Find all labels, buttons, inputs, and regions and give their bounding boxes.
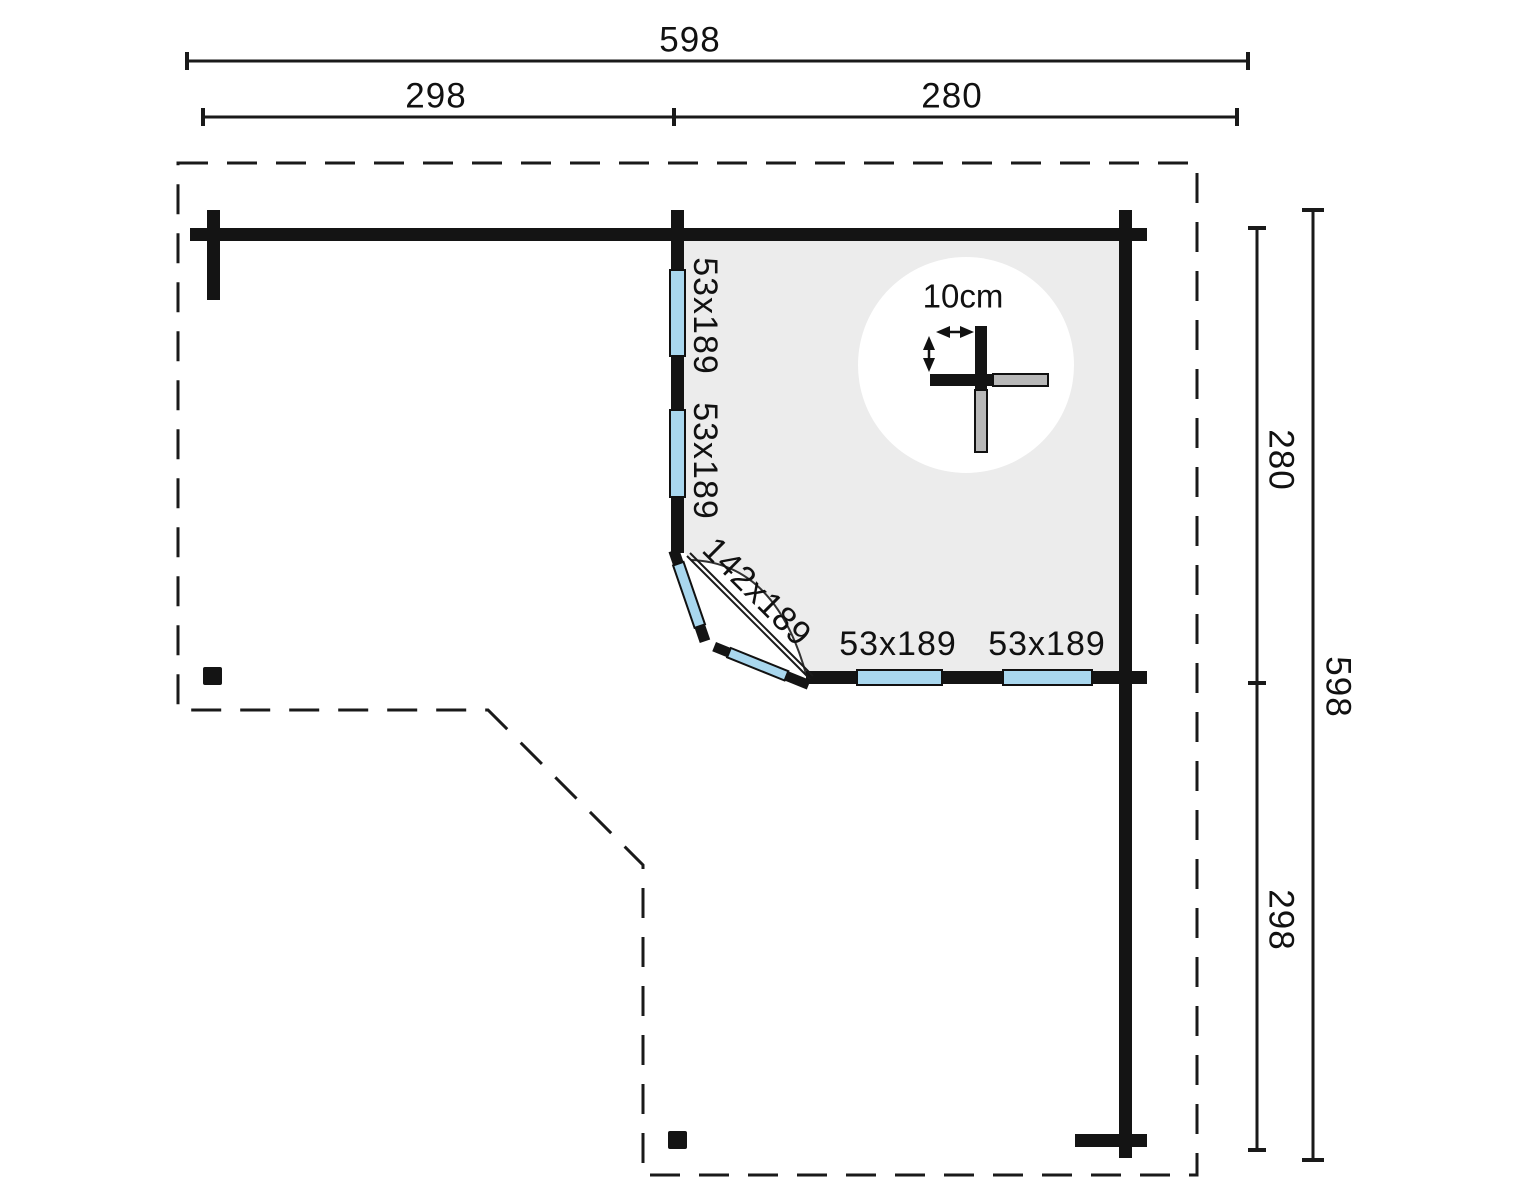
- dim-label-right-total: 598: [1319, 656, 1358, 717]
- left-window-lower: [670, 410, 685, 497]
- right-wall-bottom-cap: [1075, 1134, 1147, 1147]
- floorplan-drawing: 10cm: [0, 0, 1536, 1193]
- detail-log-vertical-grey: [975, 390, 987, 452]
- dim-label-top-right: 280: [921, 77, 982, 116]
- bottom-window-left: [857, 670, 942, 685]
- label-left-window-upper: 53x189: [686, 257, 724, 375]
- floorplan-canvas: 10cm: [0, 0, 1536, 1193]
- label-bottom-window-left: 53x189: [839, 625, 957, 663]
- bottom-window-right: [1003, 670, 1092, 685]
- detail-spacing-label: 10cm: [923, 278, 1004, 315]
- top-left-post: [207, 210, 220, 300]
- dim-label-top-left: 298: [405, 77, 466, 116]
- label-left-window-lower: 53x189: [686, 402, 724, 520]
- left-window-upper: [670, 270, 685, 356]
- dim-label-right-bottom: 298: [1262, 889, 1301, 950]
- detail-log-horizontal-black: [930, 374, 993, 386]
- post-terrace-left: [203, 667, 222, 685]
- top-wall: [190, 228, 1147, 241]
- post-terrace-bottom: [668, 1131, 687, 1149]
- detail-log-horizontal-grey: [993, 374, 1048, 386]
- label-bottom-window-right: 53x189: [988, 625, 1106, 663]
- dim-label-right-top: 280: [1262, 429, 1301, 490]
- dim-label-top-total: 598: [659, 21, 720, 60]
- posts: [203, 667, 687, 1149]
- room-left-wall: [671, 210, 684, 553]
